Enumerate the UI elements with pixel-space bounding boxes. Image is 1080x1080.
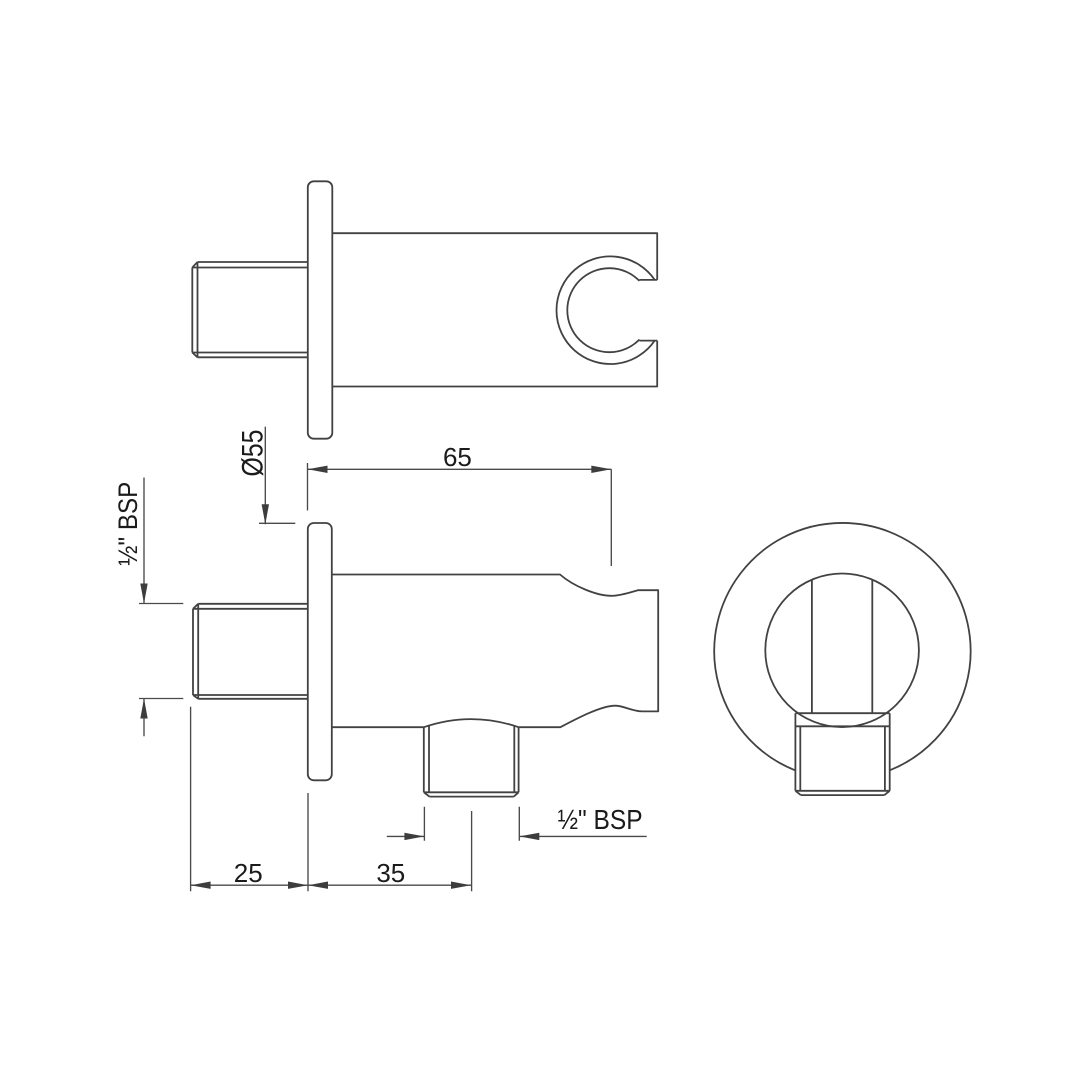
svg-text:35: 35	[376, 858, 405, 888]
svg-text:½" BSP: ½" BSP	[558, 804, 643, 835]
svg-text:½" BSP: ½" BSP	[113, 482, 143, 566]
svg-text:65: 65	[443, 442, 472, 472]
svg-text:Ø55: Ø55	[237, 430, 270, 477]
svg-text:25: 25	[234, 858, 263, 888]
